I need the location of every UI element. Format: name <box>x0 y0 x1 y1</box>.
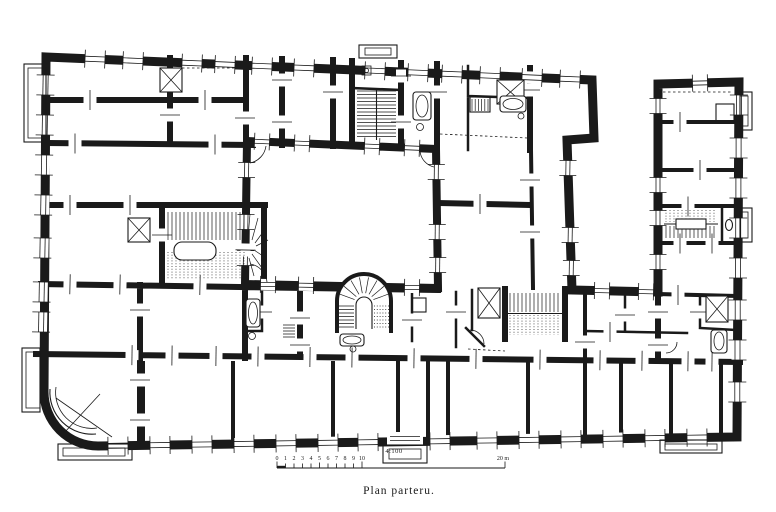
door <box>615 309 635 322</box>
window <box>318 434 338 452</box>
window <box>728 382 746 402</box>
door <box>681 351 694 371</box>
scanned-floor-plan-page: 4:100 0 1 2 3 4 5 6 7 8 9 10 20 m Plan p… <box>0 0 776 512</box>
window <box>150 436 170 454</box>
window <box>429 224 446 239</box>
door <box>124 195 137 215</box>
window <box>408 63 429 82</box>
courtyard-windows <box>235 99 666 301</box>
door <box>520 226 540 239</box>
window <box>645 429 665 447</box>
window <box>442 65 463 84</box>
window <box>35 155 53 175</box>
scale-tick-label: 9 <box>352 456 355 462</box>
window <box>238 162 255 177</box>
bathtub <box>500 96 526 112</box>
door <box>682 197 695 217</box>
scale-bar: 4:100 0 1 2 3 4 5 6 7 8 9 10 20 m <box>276 448 510 468</box>
window <box>560 70 581 89</box>
window <box>729 258 747 278</box>
door <box>290 312 310 325</box>
bay-window <box>22 348 40 412</box>
window <box>215 55 236 74</box>
door <box>706 234 719 254</box>
door <box>648 339 668 352</box>
south-courtyard-staircase <box>337 274 391 333</box>
east-courtyard-staircase <box>508 293 562 335</box>
scale-tick-label: 4 <box>310 456 313 462</box>
west-courtyard <box>245 141 438 288</box>
window <box>594 282 609 299</box>
door <box>533 350 546 370</box>
window <box>276 434 296 452</box>
window <box>234 435 254 453</box>
window <box>559 160 576 175</box>
door <box>648 306 668 319</box>
light-shaft <box>128 218 150 242</box>
main-entrance <box>387 432 423 445</box>
door <box>130 414 150 427</box>
bay-windows <box>22 64 752 463</box>
door <box>604 322 617 342</box>
door <box>160 109 180 122</box>
west-staircase <box>168 212 268 280</box>
window <box>404 139 420 157</box>
toilet <box>518 113 524 119</box>
door <box>705 351 718 371</box>
window <box>562 227 579 242</box>
window <box>638 283 653 300</box>
window <box>650 211 667 226</box>
north-staircase <box>357 45 397 140</box>
door <box>63 274 76 294</box>
window <box>294 58 315 77</box>
door <box>272 74 292 87</box>
door <box>272 116 292 129</box>
window <box>650 178 667 193</box>
door <box>674 234 687 254</box>
scale-tick-label: 2 <box>293 456 296 462</box>
scale-tick-label: 1 <box>284 456 287 462</box>
scale-tick-label: 6 <box>327 456 330 462</box>
door <box>391 116 411 129</box>
door <box>407 348 420 368</box>
door <box>125 345 138 365</box>
window <box>254 133 270 151</box>
bathtub <box>340 334 364 346</box>
window <box>563 260 580 275</box>
window <box>192 435 212 453</box>
door <box>345 347 358 367</box>
door <box>209 346 222 366</box>
window <box>85 50 106 69</box>
door <box>130 374 150 387</box>
door <box>635 351 648 371</box>
window <box>358 433 378 451</box>
toilet <box>249 333 256 340</box>
window <box>650 255 667 270</box>
window <box>729 300 747 320</box>
door <box>84 90 97 110</box>
toilet <box>350 346 356 352</box>
door <box>209 135 222 155</box>
door <box>672 285 685 305</box>
door <box>323 86 343 99</box>
scale-tick-label: 10 <box>359 456 365 462</box>
window <box>561 430 581 448</box>
door <box>130 304 150 317</box>
scale-tick-label: 0 <box>276 456 279 462</box>
door <box>674 112 687 132</box>
window <box>365 61 386 80</box>
window <box>692 74 707 91</box>
scale-tick-label: 7 <box>335 456 338 462</box>
window <box>252 57 273 76</box>
window <box>364 137 380 155</box>
floor-plan-drawing: 4:100 0 1 2 3 4 5 6 7 8 9 10 20 m Plan p… <box>0 0 776 512</box>
light-shaft <box>478 288 500 318</box>
door <box>469 349 482 369</box>
window <box>729 178 747 198</box>
scale-tick-label: 3 <box>301 456 304 462</box>
scale-label: 4:100 <box>385 448 402 455</box>
bathtub <box>246 299 260 327</box>
window <box>36 115 54 135</box>
toilet <box>417 124 424 131</box>
window <box>730 95 748 115</box>
courtyard-corner-arcs <box>250 146 677 353</box>
scale-end-label: 20 m <box>497 456 510 462</box>
door <box>446 306 466 319</box>
door <box>290 339 310 352</box>
bathtub <box>711 330 727 353</box>
window <box>294 134 310 152</box>
window <box>729 340 747 360</box>
door <box>251 346 264 366</box>
figure-caption: Plan parteru. <box>363 485 435 497</box>
window <box>428 164 445 179</box>
window <box>429 257 446 272</box>
door <box>235 112 255 125</box>
door <box>303 347 316 367</box>
window <box>650 99 667 114</box>
door <box>69 134 82 154</box>
door <box>64 195 77 215</box>
light-shaft <box>706 296 728 322</box>
door <box>520 174 540 187</box>
window <box>730 138 748 158</box>
door <box>165 345 178 365</box>
scale-tick-label: 8 <box>344 456 347 462</box>
door <box>152 229 172 242</box>
window <box>123 51 144 70</box>
door <box>593 350 606 370</box>
door <box>199 90 212 110</box>
bathtub <box>413 92 431 120</box>
light-shaft <box>160 68 182 92</box>
door <box>113 274 126 294</box>
door <box>694 160 707 180</box>
door <box>402 314 422 327</box>
door <box>474 194 487 214</box>
window <box>477 431 497 449</box>
scale-tick-label: 5 <box>318 456 321 462</box>
window <box>182 54 203 73</box>
door <box>575 336 595 349</box>
